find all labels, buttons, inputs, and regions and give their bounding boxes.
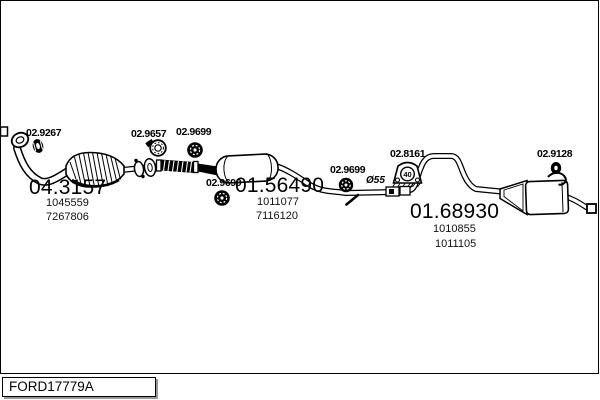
hanger-size-label: 40 <box>403 170 411 179</box>
rear-muffler-code: 01.68930 <box>410 200 499 224</box>
rear-muffler <box>500 173 596 215</box>
front-gasket-icon <box>31 138 45 154</box>
front-clamp-label: 02.9657 <box>131 128 166 140</box>
rear-gasket-label: 02.9699 <box>330 164 365 176</box>
rear-muffler-number-1: 1010855 <box>433 223 476 235</box>
flex-pipe <box>157 160 199 174</box>
front-clamp-icon <box>145 139 166 156</box>
catalyst-number-1: 1045559 <box>46 197 89 209</box>
middle-muffler-number-2: 7116120 <box>256 210 298 222</box>
tailpipe-tip <box>587 204 596 213</box>
catalyst-number-2: 7267806 <box>46 211 89 223</box>
rear-muffler-number-2: 1011105 <box>435 238 476 250</box>
front-gasket-label: 02.9267 <box>26 127 61 139</box>
rubber-hanger-label: 02.8161 <box>390 148 425 160</box>
pipe-diameter-label: Ø55 <box>366 175 385 186</box>
parts-diagram-page: 40 02.9267 02.9657 02.9699 02.9699 02.96… <box>0 0 600 400</box>
reference-box: FORD17779A <box>2 377 156 397</box>
middle-muffler-number-1: 1011077 <box>257 196 299 208</box>
reference-label: FORD17779A <box>9 379 94 394</box>
pipe-clamp-joint <box>386 187 410 197</box>
middle-muffler-code: 01.56490 <box>235 174 324 198</box>
rear-gasket-icon <box>339 178 353 192</box>
rubber-hanger-icon: 40 <box>393 163 422 188</box>
hanger-rod <box>347 195 359 205</box>
flex-gasket-icon <box>187 142 203 158</box>
flange-joint <box>134 158 157 178</box>
tail-ring-label: 02.9128 <box>537 148 572 160</box>
flex-gasket-label: 02.9699 <box>176 126 211 138</box>
tail-ring-icon <box>551 162 561 174</box>
mid-gasket-icon <box>214 190 230 206</box>
